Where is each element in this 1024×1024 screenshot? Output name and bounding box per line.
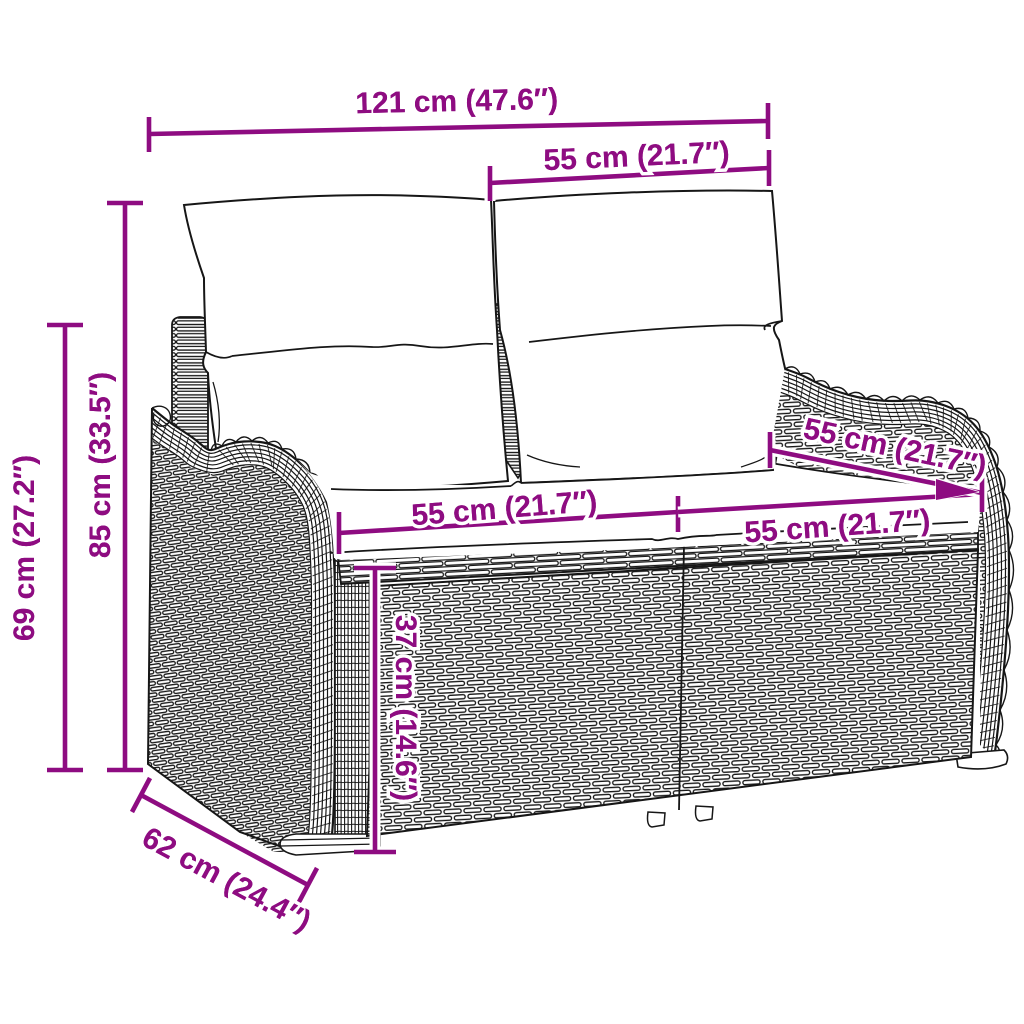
svg-text:69 cm (27.2″): 69 cm (27.2″) <box>8 455 41 641</box>
svg-text:37 cm (14.6″): 37 cm (14.6″) <box>389 615 422 801</box>
svg-text:85 cm (33.5″): 85 cm (33.5″) <box>84 372 117 558</box>
svg-text:121 cm (47.6″): 121 cm (47.6″) <box>355 83 559 121</box>
